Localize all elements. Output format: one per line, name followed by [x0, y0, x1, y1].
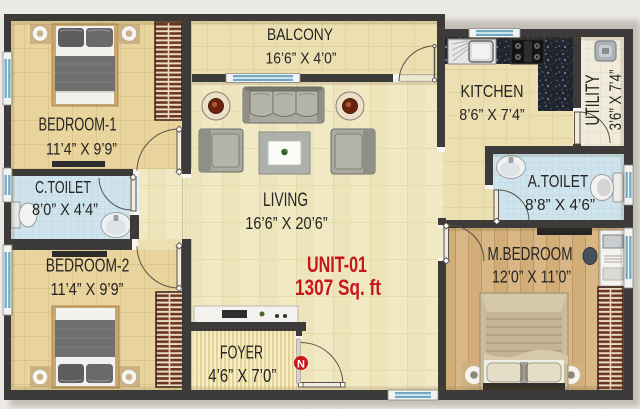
svg-text:UTILITY: UTILITY [582, 75, 604, 126]
svg-text:UNIT-01: UNIT-01 [307, 252, 367, 277]
svg-text:3’6” X 7’4”: 3’6” X 7’4” [606, 69, 625, 130]
svg-text:1307 Sq. ft: 1307 Sq. ft [295, 275, 381, 300]
svg-text:16’6” X 4’0”: 16’6” X 4’0” [266, 51, 337, 68]
svg-text:BALCONY: BALCONY [267, 26, 333, 44]
svg-text:A.TOILET: A.TOILET [528, 171, 589, 191]
svg-text:16’6” X 20’6”: 16’6” X 20’6” [245, 213, 328, 233]
svg-text:8’0” X 4’4”: 8’0” X 4’4” [32, 201, 98, 219]
svg-text:8’6” X 7’4”: 8’6” X 7’4” [459, 107, 524, 124]
svg-text:11’4” X 9’9”: 11’4” X 9’9” [46, 140, 117, 159]
svg-text:C.TOILET: C.TOILET [35, 177, 91, 197]
svg-text:11’4” X 9’9”: 11’4” X 9’9” [51, 279, 124, 299]
svg-text:4’6” X 7’0”: 4’6” X 7’0” [208, 366, 276, 386]
svg-text:N: N [297, 359, 305, 371]
svg-text:8’8” X 4’6”: 8’8” X 4’6” [525, 197, 595, 214]
svg-text:12’0” X 11’0”: 12’0” X 11’0” [492, 267, 571, 287]
svg-text:BEDROOM-2: BEDROOM-2 [46, 255, 130, 276]
svg-text:FOYER: FOYER [220, 342, 263, 363]
svg-text:BEDROOM-1: BEDROOM-1 [39, 114, 117, 135]
svg-text:M.BEDROOM: M.BEDROOM [488, 243, 573, 264]
svg-text:LIVING: LIVING [263, 190, 308, 211]
svg-text:KITCHEN: KITCHEN [461, 81, 524, 101]
